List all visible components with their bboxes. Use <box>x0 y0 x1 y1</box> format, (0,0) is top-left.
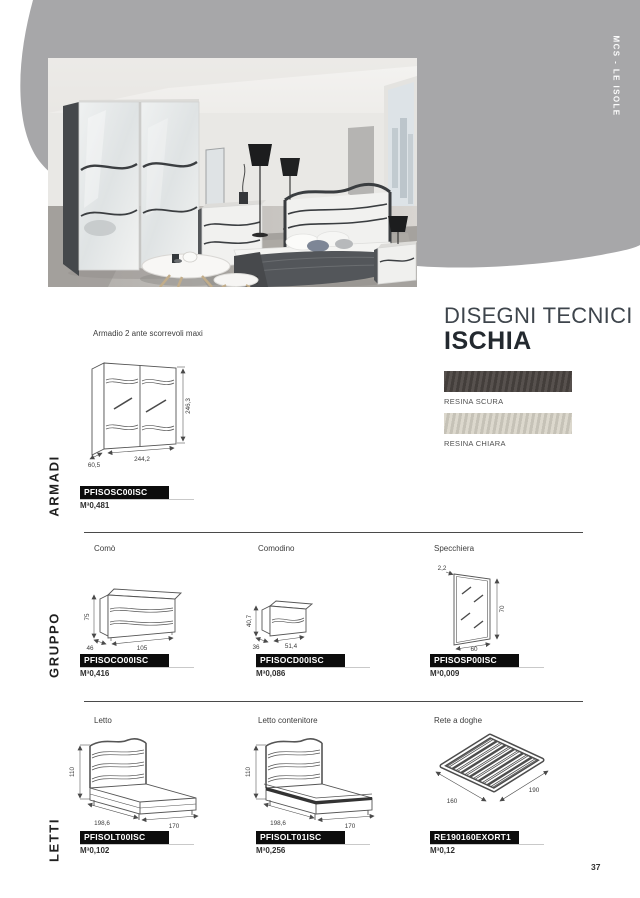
product-code-como: PFISOCO00ISC <box>80 654 169 667</box>
item-title-letto-contenitore: Letto contenitore <box>258 716 318 725</box>
volume-unit: M³ <box>256 846 265 855</box>
dim-label-depth: 198,6 <box>270 820 286 827</box>
section-label-gruppo: GRUPPO <box>47 612 62 678</box>
bed-technical-drawing: 110 198,6 170 <box>66 732 208 830</box>
volume-letto: M³0,102 <box>80 846 109 855</box>
item-title-comodino: Comodino <box>258 544 294 553</box>
volume-value: 0,481 <box>89 501 109 510</box>
dresser-technical-drawing: 75 46 105 <box>80 582 195 652</box>
mirror-technical-drawing: 2,2 70 60 <box>432 560 512 652</box>
item-title-como: Comò <box>94 544 115 553</box>
volume-como: M³0,416 <box>80 669 109 678</box>
hero-photo <box>48 58 417 287</box>
wardrobe-technical-drawing: 246,3 244,2 60,5 <box>82 354 200 472</box>
product-code-armadio: PFISOSC00ISC <box>80 486 169 499</box>
separator-armadi-gruppo <box>84 532 583 533</box>
finish-swatch-dark <box>444 371 572 392</box>
product-code-letto: PFISOLT00ISC <box>80 831 169 844</box>
dim-label-depth: 2,2 <box>438 565 447 572</box>
product-code-rete: RE190160EXORT1 <box>430 831 519 844</box>
section-label-armadi: ARMADI <box>47 455 62 517</box>
finish-label-light: RESINA CHIARA <box>444 439 506 448</box>
dim-label-width: 244,2 <box>134 456 150 463</box>
dim-label-height: 110 <box>69 766 76 777</box>
finish-swatch-light <box>444 413 572 434</box>
volume-value: 0,102 <box>89 846 109 855</box>
item-title-armadio: Armadio 2 ante scorrevoli maxi <box>93 329 203 338</box>
slat-base-technical-drawing: 160 190 <box>428 724 558 814</box>
tech-title-line2: ISCHIA <box>444 327 532 356</box>
volume-comodino: M³0,086 <box>256 669 285 678</box>
product-code-letto-contenitore: PFISOLT01ISC <box>256 831 345 844</box>
volume-unit: M³ <box>430 846 439 855</box>
dim-label-depth: 36 <box>252 644 260 651</box>
dim-label-depth: 60,5 <box>88 462 101 469</box>
volume-specchiera: M³0,009 <box>430 669 459 678</box>
dim-label-width: 105 <box>137 645 148 652</box>
volume-unit: M³ <box>80 501 89 510</box>
item-title-specchiera: Specchiera <box>434 544 474 553</box>
volume-unit: M³ <box>80 669 89 678</box>
volume-value: 0,416 <box>89 669 109 678</box>
dim-label-height: 40,7 <box>246 614 253 627</box>
dim-label-depth: 160 <box>447 798 458 805</box>
storage-bed-technical-drawing: 110 198,6 170 <box>242 732 384 830</box>
volume-unit: M³ <box>80 846 89 855</box>
bedroom-scene <box>48 58 417 287</box>
separator-gruppo-letti <box>84 701 583 702</box>
volume-value: 0,256 <box>265 846 285 855</box>
dim-label-height: 75 <box>84 613 91 621</box>
dim-label-width: 190 <box>529 787 540 794</box>
volume-value: 0,009 <box>439 669 459 678</box>
volume-rete: M³0,12 <box>430 846 455 855</box>
dim-label-height: 110 <box>245 766 252 777</box>
dim-label-width: 170 <box>169 823 180 830</box>
volume-value: 0,12 <box>439 846 455 855</box>
finish-label-dark: RESINA SCURA <box>444 397 503 406</box>
collection-side-label: MCS - LE ISOLE <box>612 36 621 117</box>
product-code-specchiera: PFISOSP00ISC <box>430 654 519 667</box>
dim-label-width: 60 <box>470 646 478 652</box>
dim-label-depth: 46 <box>86 645 94 652</box>
volume-armadio: M³0,481 <box>80 501 109 510</box>
product-code-comodino: PFISOCD00ISC <box>256 654 345 667</box>
dim-label-height: 246,3 <box>185 398 192 414</box>
volume-letto-contenitore: M³0,256 <box>256 846 285 855</box>
volume-unit: M³ <box>256 669 265 678</box>
nightstand-technical-drawing: 40,7 36 51,4 <box>244 590 320 652</box>
wardrobe-photo <box>63 99 199 276</box>
dim-label-height: 70 <box>499 605 506 613</box>
section-label-letti: LETTI <box>47 818 62 862</box>
page-number: 37 <box>591 862 600 872</box>
tech-title-line1: DISEGNI TECNICI <box>444 303 633 329</box>
dim-label-width: 170 <box>345 823 356 830</box>
catalog-page: MCS - LE ISOLE <box>0 0 640 898</box>
mirror-photo <box>206 148 224 210</box>
item-title-letto: Letto <box>94 716 112 725</box>
dim-label-depth: 198,6 <box>94 820 110 827</box>
dim-label-width: 51,4 <box>285 643 298 650</box>
volume-unit: M³ <box>430 669 439 678</box>
volume-value: 0,086 <box>265 669 285 678</box>
